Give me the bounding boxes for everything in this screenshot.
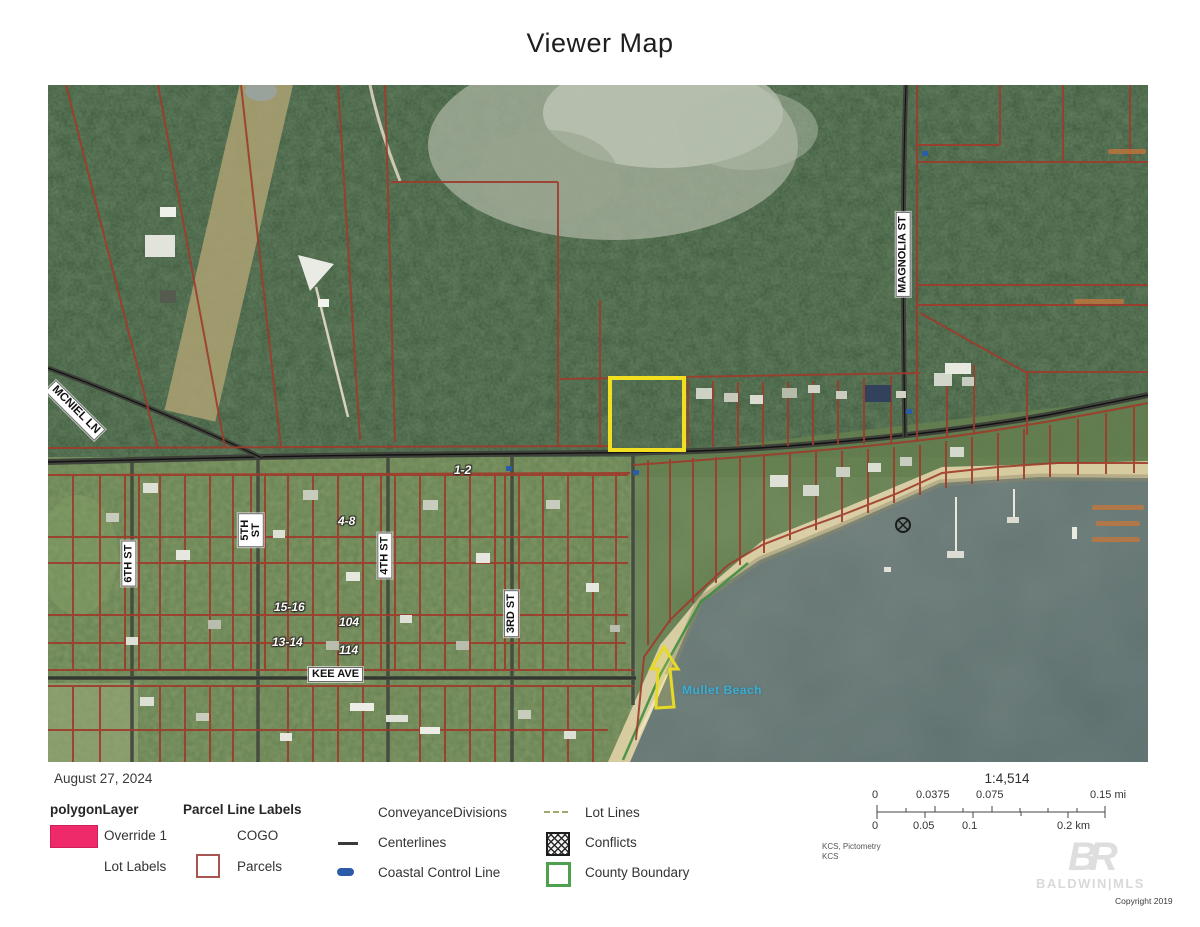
copyright-notice: Copyright 2019	[1115, 896, 1173, 906]
street-label-5th-st: 5TH ST	[238, 513, 264, 547]
scale-bar	[872, 804, 1117, 820]
county-boundary-symbol	[546, 862, 571, 887]
scale-mi-3: 0.15 mi	[1090, 789, 1126, 801]
legend-item-conflicts: Conflicts	[585, 835, 637, 850]
street-label-4th-st: 4TH ST	[377, 533, 392, 579]
legend-item-override-1: Override 1	[104, 828, 167, 843]
parcels-symbol	[196, 854, 220, 878]
legend-item-cogo: COGO	[237, 828, 278, 843]
legend-item-centerlines: Centerlines	[378, 835, 446, 850]
centerlines-symbol	[338, 842, 358, 845]
parcel-label: 13-14	[272, 635, 303, 649]
viewer-map-page: Viewer Map	[0, 0, 1200, 927]
legend-heading-polygon-layer: polygonLayer	[50, 802, 139, 817]
scale-mi-2: 0.075	[976, 789, 1004, 801]
map-date: August 27, 2024	[54, 771, 152, 786]
beach-label: Mullet Beach	[682, 683, 762, 697]
scale-km-0: 0	[872, 820, 878, 832]
scale-mi-0: 0	[872, 789, 878, 801]
scale-ratio: 1:4,514	[952, 771, 1062, 786]
parcel-label: 1-2	[454, 463, 471, 477]
parcel-label: 15-16	[274, 600, 305, 614]
scale-km-3: 0.2 km	[1057, 820, 1090, 832]
coastal-control-line-symbol	[337, 868, 354, 876]
scale-mi-1: 0.0375	[916, 789, 950, 801]
lot-lines-symbol	[544, 811, 568, 813]
map-viewport: MCNIEL LN 6TH ST 5TH ST 4TH ST 3RD ST KE…	[48, 85, 1148, 762]
street-label-3rd-st: 3RD ST	[504, 590, 519, 637]
legend-item-coastal-control-line: Coastal Control Line	[378, 865, 500, 880]
street-label-kee-ave: KEE AVE	[308, 667, 363, 682]
legend-item-parcels: Parcels	[237, 859, 282, 874]
legend-item-county-boundary: County Boundary	[585, 865, 689, 880]
scale-km-2: 0.1	[962, 820, 977, 832]
parcel-label: 104	[339, 615, 359, 629]
legend-heading-parcel-line-labels: Parcel Line Labels	[183, 802, 302, 817]
baldwin-logo-monogram: BR	[1068, 835, 1110, 880]
legend-item-conveyance-divisions: ConveyanceDivisions	[378, 805, 507, 820]
parcel-label: 4-8	[338, 514, 355, 528]
legend-item-lot-lines: Lot Lines	[585, 805, 640, 820]
baldwin-logo-name: BALDWIN|MLS	[1036, 876, 1145, 891]
override-1-swatch	[50, 825, 98, 848]
legend-item-lot-labels: Lot Labels	[104, 859, 166, 874]
page-title: Viewer Map	[0, 28, 1200, 59]
aerial-map-svg	[48, 85, 1148, 762]
imagery-attribution: KCS, Pictometry KCS	[822, 842, 881, 862]
street-label-magnolia-st: MAGNOLIA ST	[896, 212, 911, 297]
scale-km-1: 0.05	[913, 820, 934, 832]
parcel-label: 114	[339, 643, 358, 657]
conflicts-symbol	[546, 832, 570, 856]
street-label-6th-st: 6TH ST	[121, 541, 136, 587]
